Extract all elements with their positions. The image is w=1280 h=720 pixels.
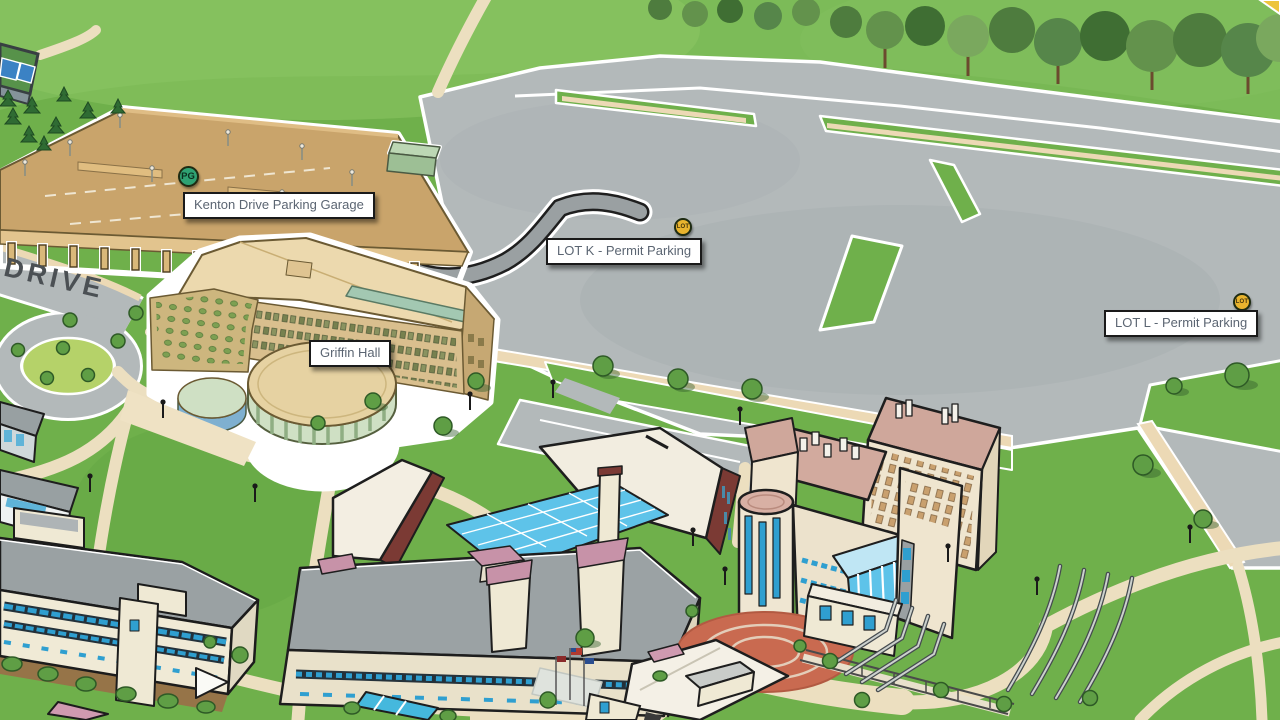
- lot-l-icon[interactable]: LOT: [1233, 293, 1251, 311]
- kenton-drive-parking-garage-icon[interactable]: PG: [178, 166, 199, 187]
- kenton-drive-parking-garage-label[interactable]: Kenton Drive Parking Garage: [183, 192, 375, 219]
- campus-map: PGKenton Drive Parking GarageLOTLOT K - …: [0, 0, 1280, 720]
- map-markers: PGKenton Drive Parking GarageLOTLOT K - …: [0, 0, 1280, 720]
- lot-l-label[interactable]: LOT L - Permit Parking: [1104, 310, 1258, 337]
- griffin-hall-label[interactable]: Griffin Hall: [309, 340, 391, 367]
- lot-k-icon[interactable]: LOT: [674, 218, 692, 236]
- lot-k-label[interactable]: LOT K - Permit Parking: [546, 238, 702, 265]
